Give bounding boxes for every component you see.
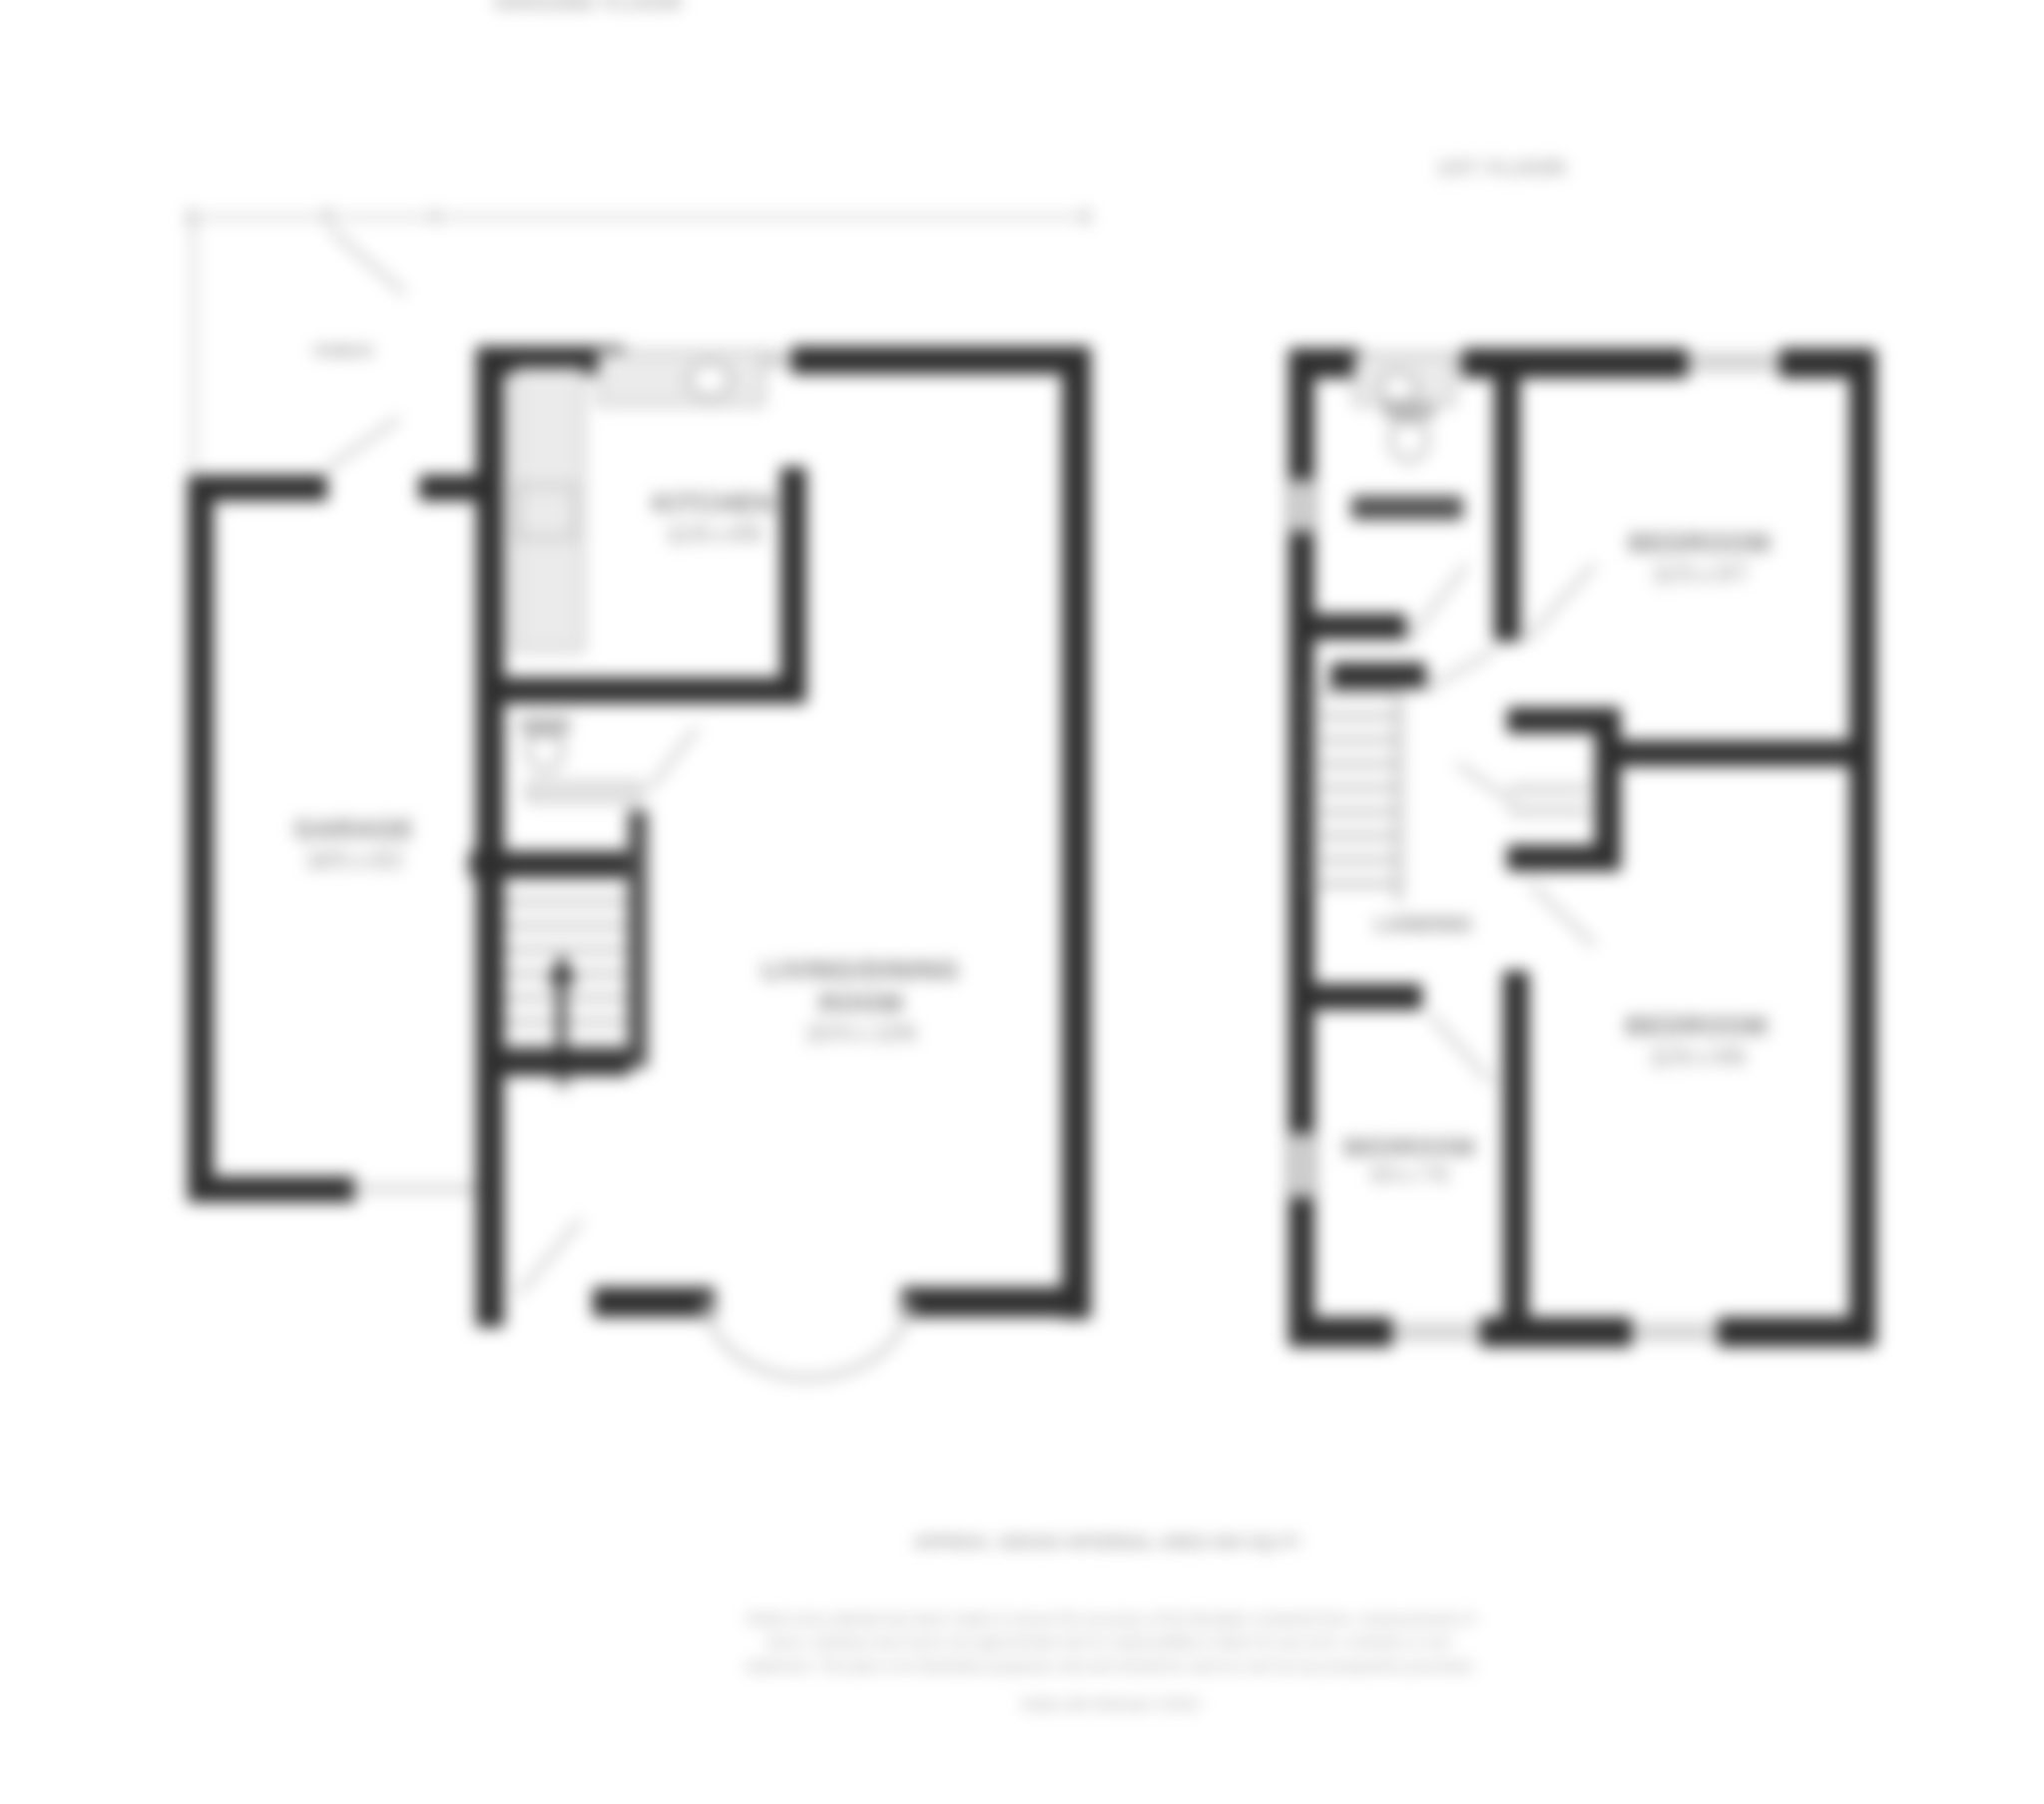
bedroom1-name: BEDROOM bbox=[1605, 527, 1794, 560]
kitchen-label: KITCHEN 11'8 x 8'9 bbox=[614, 487, 813, 548]
porch-label: PORCH bbox=[269, 343, 419, 360]
living-room-label: LIVING/DINING ROOM 22'4 x 13'6 bbox=[717, 954, 1006, 1048]
bedroom2-dims: 11'6 x 9'8 bbox=[1602, 1043, 1791, 1072]
stairs-arrow-shaft bbox=[557, 981, 566, 1081]
wall bbox=[1288, 614, 1406, 640]
bow-window-arc bbox=[702, 1299, 913, 1381]
wall bbox=[593, 1287, 715, 1317]
living-room-dims: 22'4 x 13'6 bbox=[717, 1019, 1006, 1048]
stairs bbox=[1304, 690, 1398, 902]
stairs-arrow-base bbox=[555, 1080, 571, 1090]
kitchen-dims: 11'8 x 8'9 bbox=[614, 520, 813, 549]
bedroom3-name: BEDROOM bbox=[1327, 1133, 1492, 1163]
window bbox=[1392, 1323, 1480, 1341]
wall bbox=[469, 851, 641, 877]
wall bbox=[1480, 1317, 1632, 1347]
wall bbox=[1849, 348, 1876, 1347]
first-floor-title: 1ST FLOOR bbox=[1417, 158, 1587, 181]
door-swing bbox=[1528, 882, 1596, 948]
basin-icon bbox=[527, 782, 641, 802]
floorplan-canvas: GROUND FLOOR PORCH GARAGE 16'5 x 8'2 KIT… bbox=[0, 0, 2044, 1804]
door-swing bbox=[1523, 562, 1597, 643]
wall bbox=[1621, 740, 1849, 766]
toilet-icon bbox=[1389, 418, 1429, 462]
garage-dims: 16'5 x 8'2 bbox=[255, 846, 454, 875]
floor-area-line: APPROX. GROSS INTERNAL AREA 904 SQ FT bbox=[808, 1535, 1407, 1553]
landing-label: LANDING bbox=[1349, 914, 1499, 937]
wall bbox=[1288, 1317, 1392, 1347]
door-swing bbox=[1428, 1013, 1493, 1085]
bedroom1-dims: 11'5 x 9'7 bbox=[1605, 560, 1794, 589]
window bbox=[1290, 1133, 1312, 1197]
floorplan-page: GROUND FLOOR PORCH GARAGE 16'5 x 8'2 KIT… bbox=[0, 0, 2044, 1804]
wall bbox=[1330, 663, 1426, 688]
disclaimer-text: Whilst every attempt has been made to en… bbox=[732, 1608, 1490, 1678]
sink-icon bbox=[687, 361, 733, 399]
cupboard-shelf bbox=[1509, 786, 1589, 792]
living-room-name: LIVING/DINING ROOM bbox=[717, 954, 1006, 1019]
wall bbox=[791, 346, 1091, 374]
kitchen-sink-unit bbox=[597, 351, 765, 406]
sink-icon bbox=[1378, 371, 1418, 405]
wall bbox=[502, 1050, 630, 1076]
wall bbox=[1062, 346, 1091, 1319]
wall bbox=[1288, 984, 1422, 1010]
bath-icon bbox=[1351, 496, 1463, 520]
wall bbox=[1503, 971, 1529, 1317]
dimension-tick bbox=[188, 208, 193, 225]
cupboard-shelf bbox=[1509, 808, 1589, 814]
stair-rail bbox=[1396, 690, 1402, 902]
window bbox=[1290, 480, 1312, 532]
stairs-up-arrow-icon bbox=[548, 953, 576, 983]
dimension-tick bbox=[1084, 208, 1089, 225]
wall bbox=[901, 1287, 1091, 1317]
wall bbox=[1507, 845, 1621, 871]
toilet-tank-icon bbox=[1384, 403, 1434, 418]
garage-name: GARAGE bbox=[255, 813, 454, 846]
dimension-tick bbox=[433, 210, 438, 224]
credit-text: Made with Metropix ©2023 bbox=[732, 1693, 1490, 1716]
window bbox=[1688, 352, 1780, 372]
wall bbox=[1718, 1317, 1876, 1347]
wall bbox=[489, 677, 806, 703]
door-swing bbox=[646, 726, 699, 792]
bedroom2-label: BEDROOM 11'6 x 9'8 bbox=[1602, 1010, 1791, 1071]
door-swing bbox=[328, 227, 407, 296]
window bbox=[1632, 1323, 1718, 1341]
bedroom3-dims: 8'4 x 7'9 bbox=[1327, 1163, 1492, 1189]
door-swing bbox=[1405, 563, 1469, 643]
wall bbox=[188, 475, 327, 501]
bedroom3-label: BEDROOM 8'4 x 7'9 bbox=[1327, 1133, 1492, 1189]
door-swing bbox=[325, 416, 402, 472]
ground-floor-title: GROUND FLOOR bbox=[459, 0, 719, 15]
wall bbox=[188, 482, 214, 1202]
wall bbox=[188, 1176, 355, 1202]
hob-icon bbox=[516, 485, 576, 539]
dimension-line-vertical bbox=[192, 219, 195, 471]
wall bbox=[1494, 376, 1520, 642]
garage-label: GARAGE 16'5 x 8'2 bbox=[255, 813, 454, 874]
door-swing bbox=[516, 1218, 583, 1296]
bedroom2-name: BEDROOM bbox=[1602, 1010, 1791, 1043]
wall bbox=[476, 346, 504, 1327]
toilet-icon bbox=[526, 731, 564, 771]
door-swing bbox=[1423, 648, 1497, 692]
dimension-tick bbox=[325, 208, 330, 224]
bow-window bbox=[702, 1299, 913, 1384]
stair-rail-wall bbox=[628, 810, 648, 1068]
bedroom1-label: BEDROOM 11'5 x 9'7 bbox=[1605, 527, 1794, 588]
kitchen-name: KITCHEN bbox=[614, 487, 813, 520]
door-swing bbox=[1456, 761, 1516, 805]
wall bbox=[1462, 348, 1688, 378]
